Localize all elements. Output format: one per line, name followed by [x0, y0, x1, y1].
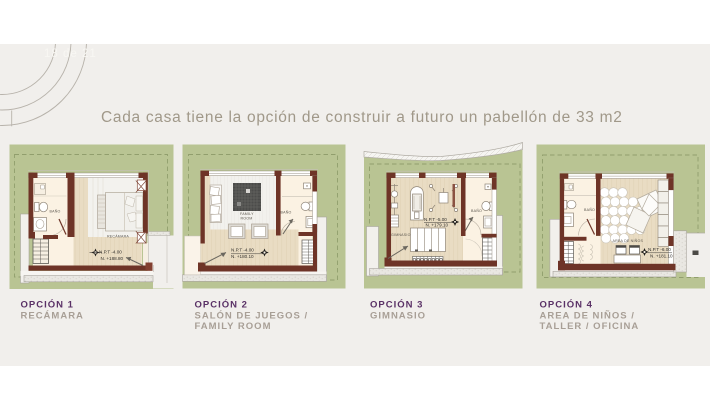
svg-text:OPCIÓN 2: OPCIÓN 2 — [195, 299, 248, 311]
svg-text:GIMNASIO: GIMNASIO — [391, 233, 411, 237]
svg-text:AREA DE NIÑOS: AREA DE NIÑOS — [613, 238, 644, 243]
svg-text:FAMILY ROOM: FAMILY ROOM — [195, 321, 272, 332]
svg-text:GIMNASIO: GIMNASIO — [370, 311, 426, 322]
svg-text:N. +188.80: N. +188.80 — [101, 256, 124, 261]
svg-text:N.P.T -4.00: N.P.T -4.00 — [99, 250, 122, 255]
svg-text:OPCIÓN 1: OPCIÓN 1 — [21, 299, 74, 311]
svg-text:BAÑO: BAÑO — [471, 208, 482, 213]
svg-text:N.P.T -4.00: N.P.T -4.00 — [231, 248, 254, 253]
svg-text:N. +179.10: N. +179.10 — [426, 223, 449, 228]
svg-text:TALLER / OFICINA: TALLER / OFICINA — [540, 321, 640, 332]
svg-text:N. +180.10: N. +180.10 — [231, 254, 254, 259]
svg-text:Cada casa tiene la opción de c: Cada casa tiene la opción de construir a… — [101, 109, 623, 126]
svg-text:OPCIÓN 3: OPCIÓN 3 — [370, 299, 423, 311]
svg-text:RECÁMARA: RECÁMARA — [21, 311, 84, 322]
svg-text:BAÑO: BAÑO — [281, 210, 292, 215]
svg-text:BAÑO: BAÑO — [50, 209, 61, 214]
svg-text:RECÁMARA: RECÁMARA — [107, 235, 129, 239]
svg-text:FAMILY: FAMILY — [240, 212, 254, 216]
svg-text:BAÑO: BAÑO — [584, 207, 595, 212]
svg-text:N. +181.10: N. +181.10 — [650, 254, 673, 259]
svg-text:OPCIÓN 4: OPCIÓN 4 — [540, 299, 593, 311]
svg-text:N.P.T -5.00: N.P.T -5.00 — [424, 217, 447, 222]
svg-text:ROOM: ROOM — [241, 217, 253, 221]
svg-text:N.P.T -6.00: N.P.T -6.00 — [648, 247, 671, 252]
svg-text:18 de 21: 18 de 21 — [44, 48, 97, 60]
